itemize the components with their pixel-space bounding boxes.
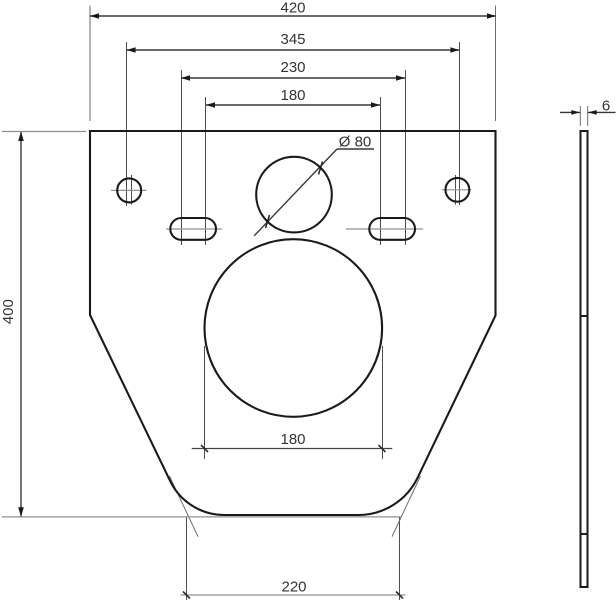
svg-text:180: 180 <box>280 87 305 104</box>
svg-text:Ø 80: Ø 80 <box>339 134 372 151</box>
svg-text:230: 230 <box>280 59 305 76</box>
svg-text:345: 345 <box>280 31 305 48</box>
svg-text:400: 400 <box>0 299 17 324</box>
svg-text:180: 180 <box>280 431 305 448</box>
svg-text:6: 6 <box>602 98 610 115</box>
svg-text:420: 420 <box>280 0 305 17</box>
svg-text:220: 220 <box>281 579 306 596</box>
